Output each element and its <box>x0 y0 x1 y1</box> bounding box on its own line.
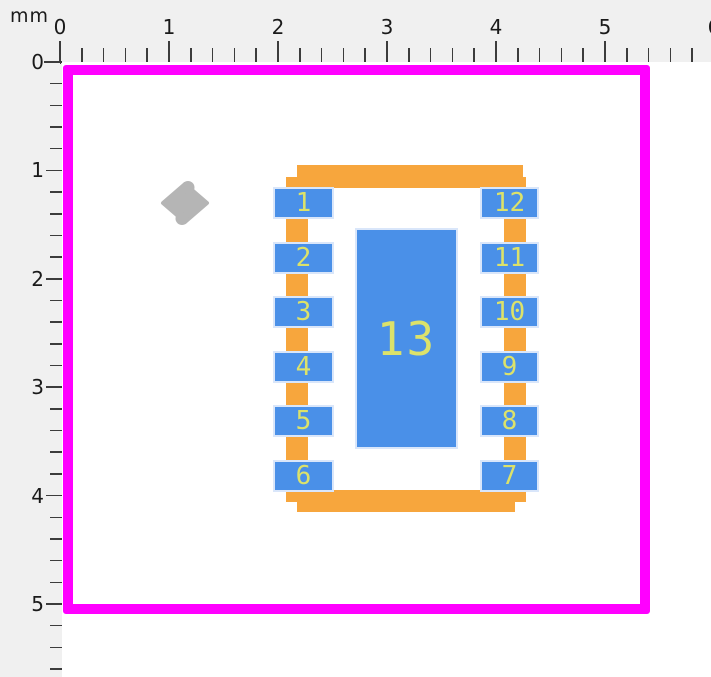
ruler-top-tick-label: 1 <box>154 15 184 39</box>
ruler-left-minor-tick <box>50 105 62 107</box>
ruler-left-minor-tick <box>50 668 62 670</box>
ruler-top-tick-label: 4 <box>481 15 511 39</box>
ruler-top-tick-label: 6 <box>699 15 711 39</box>
ruler-top-tick-label: 3 <box>372 15 402 39</box>
ruler-left-minor-tick <box>50 126 62 128</box>
ruler-unit-label: mm <box>10 5 49 27</box>
footprint-viewer-canvas[interactable]: mm 0123456012345 12345612111098713 <box>0 0 711 677</box>
ruler-left-major-tick <box>46 278 62 280</box>
ruler-top-minor-tick <box>81 48 83 62</box>
ruler-left-tick-label: 5 <box>12 592 44 616</box>
ruler-left-major-tick <box>46 386 62 388</box>
ruler-top-minor-tick <box>670 48 672 62</box>
ruler-top-minor-tick <box>626 48 628 62</box>
ruler-top-minor-tick <box>255 48 257 62</box>
ruler-top-minor-tick <box>212 48 214 62</box>
ruler-top-minor-tick <box>408 48 410 62</box>
ruler-left-major-tick <box>46 170 62 172</box>
ruler-top-minor-tick <box>234 48 236 62</box>
ruler-top-minor-tick <box>103 48 105 62</box>
ruler-left-minor-tick <box>50 235 62 237</box>
ruler-top-major-tick <box>277 41 279 62</box>
ruler-left-minor-tick <box>50 148 62 150</box>
ruler-top-minor-tick <box>517 48 519 62</box>
ruler-left-major-tick <box>46 603 62 605</box>
ruler-top-major-tick <box>495 41 497 62</box>
ruler-top-tick-label: 5 <box>590 15 620 39</box>
ruler-top-minor-tick <box>539 48 541 62</box>
ruler-left-minor-tick <box>50 256 62 258</box>
courtyard-outline <box>63 65 650 614</box>
ruler-left-minor-tick <box>50 343 62 345</box>
ruler-left-minor-tick <box>50 538 62 540</box>
ruler-top-minor-tick <box>190 48 192 62</box>
ruler-top-major-tick <box>168 41 170 62</box>
ruler-left-minor-tick <box>50 451 62 453</box>
ruler-left-minor-tick <box>50 582 62 584</box>
ruler-top-minor-tick <box>452 48 454 62</box>
ruler-top-tick-label: 0 <box>45 15 75 39</box>
ruler-top-minor-tick <box>582 48 584 62</box>
ruler-top-minor-tick <box>473 48 475 62</box>
ruler-left-minor-tick <box>50 213 62 215</box>
ruler-left-major-tick <box>46 495 62 497</box>
ruler-left-minor-tick <box>50 408 62 410</box>
ruler-left-major-tick <box>46 61 62 63</box>
ruler-left-tick-label: 2 <box>12 267 44 291</box>
ruler-top-major-tick <box>386 41 388 62</box>
ruler-top-minor-tick <box>691 48 693 62</box>
ruler-top-major-tick <box>604 41 606 62</box>
ruler-left-minor-tick <box>50 473 62 475</box>
ruler-top-minor-tick <box>561 48 563 62</box>
ruler-left-tick-label: 1 <box>12 158 44 182</box>
ruler-left-minor-tick <box>50 647 62 649</box>
ruler-left-minor-tick <box>50 430 62 432</box>
ruler-left-tick-label: 0 <box>12 50 44 74</box>
ruler-left-minor-tick <box>50 365 62 367</box>
ruler-top-minor-tick <box>125 48 127 62</box>
ruler-left <box>0 0 62 677</box>
ruler-top-minor-tick <box>146 48 148 62</box>
ruler-top-minor-tick <box>299 48 301 62</box>
ruler-top-tick-label: 2 <box>263 15 293 39</box>
ruler-top-minor-tick <box>648 48 650 62</box>
ruler-left-minor-tick <box>50 625 62 627</box>
ruler-left-minor-tick <box>50 517 62 519</box>
ruler-left-minor-tick <box>50 300 62 302</box>
ruler-left-tick-label: 3 <box>12 375 44 399</box>
ruler-left-minor-tick <box>50 191 62 193</box>
ruler-top-minor-tick <box>364 48 366 62</box>
ruler-top-minor-tick <box>321 48 323 62</box>
ruler-left-minor-tick <box>50 560 62 562</box>
ruler-top-minor-tick <box>343 48 345 62</box>
ruler-left-minor-tick <box>50 83 62 85</box>
ruler-top-major-tick <box>59 41 61 62</box>
ruler-left-minor-tick <box>50 321 62 323</box>
ruler-left-tick-label: 4 <box>12 484 44 508</box>
ruler-top-minor-tick <box>430 48 432 62</box>
